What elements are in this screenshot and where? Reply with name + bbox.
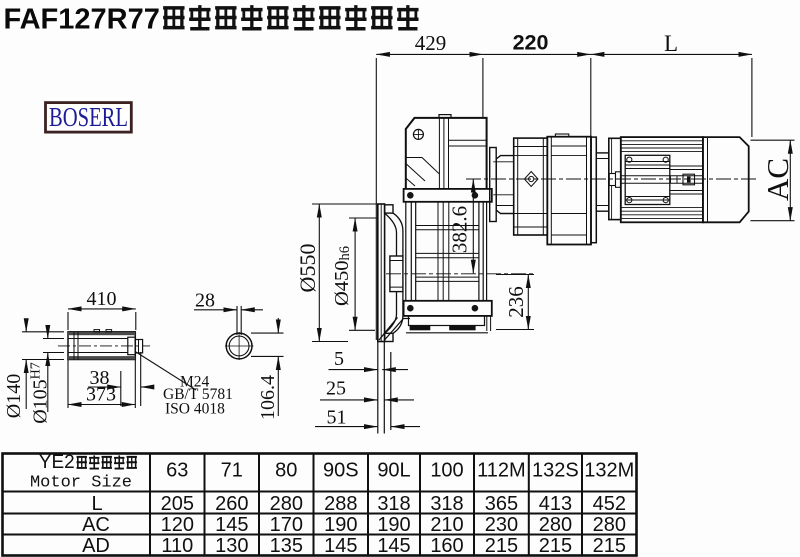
svg-text:318: 318 bbox=[377, 493, 410, 515]
svg-text:145: 145 bbox=[215, 514, 248, 536]
svg-text:L: L bbox=[664, 31, 678, 56]
svg-text:170: 170 bbox=[270, 514, 303, 536]
svg-text:63: 63 bbox=[166, 460, 188, 482]
svg-text:160: 160 bbox=[430, 535, 463, 557]
svg-text:205: 205 bbox=[161, 493, 194, 515]
svg-text:215: 215 bbox=[539, 535, 572, 557]
svg-text:452: 452 bbox=[593, 493, 626, 515]
svg-text:28: 28 bbox=[195, 290, 215, 312]
svg-text:Ø450h6: Ø450h6 bbox=[331, 246, 353, 306]
svg-text:90S: 90S bbox=[323, 460, 359, 482]
svg-text:190: 190 bbox=[377, 514, 410, 536]
svg-text:220: 220 bbox=[513, 31, 549, 55]
svg-text:L: L bbox=[91, 493, 102, 515]
svg-text:AC: AC bbox=[760, 158, 795, 201]
svg-text:51: 51 bbox=[327, 407, 347, 429]
svg-text:Motor Size: Motor Size bbox=[30, 474, 132, 493]
svg-text:429: 429 bbox=[415, 31, 447, 55]
svg-text:5: 5 bbox=[334, 348, 344, 370]
svg-text:AC: AC bbox=[82, 514, 110, 536]
svg-text:280: 280 bbox=[593, 514, 626, 536]
svg-text:ISO 4018: ISO 4018 bbox=[165, 401, 225, 418]
svg-text:106.4: 106.4 bbox=[257, 375, 279, 420]
svg-text:382.6: 382.6 bbox=[448, 206, 472, 253]
svg-text:AD: AD bbox=[82, 535, 110, 557]
svg-text:71: 71 bbox=[221, 460, 243, 482]
svg-text:120: 120 bbox=[161, 514, 194, 536]
svg-text:215: 215 bbox=[485, 535, 518, 557]
svg-text:280: 280 bbox=[270, 493, 303, 515]
svg-text:215: 215 bbox=[593, 535, 626, 557]
svg-text:135: 135 bbox=[270, 535, 303, 557]
svg-text:25: 25 bbox=[326, 378, 346, 400]
svg-text:130: 130 bbox=[215, 535, 248, 557]
svg-text:236: 236 bbox=[504, 286, 528, 318]
svg-text:110: 110 bbox=[161, 535, 193, 557]
svg-text:145: 145 bbox=[324, 535, 357, 557]
svg-text:318: 318 bbox=[430, 493, 463, 515]
svg-text:210: 210 bbox=[430, 514, 463, 536]
svg-text:373: 373 bbox=[86, 384, 116, 406]
svg-text:112M: 112M bbox=[477, 460, 526, 482]
svg-text:260: 260 bbox=[215, 493, 248, 515]
svg-text:145: 145 bbox=[377, 535, 410, 557]
svg-text:YE2: YE2 bbox=[39, 452, 75, 473]
svg-text:230: 230 bbox=[485, 514, 518, 536]
svg-text:Ø140: Ø140 bbox=[3, 374, 25, 418]
svg-text:365: 365 bbox=[485, 493, 518, 515]
svg-text:FAF127R77: FAF127R77 bbox=[4, 3, 160, 35]
svg-text:280: 280 bbox=[539, 514, 572, 536]
svg-text:413: 413 bbox=[539, 493, 572, 515]
svg-text:90L: 90L bbox=[377, 460, 410, 482]
svg-text:132S: 132S bbox=[532, 460, 579, 482]
svg-text:Ø550: Ø550 bbox=[295, 244, 320, 293]
svg-text:190: 190 bbox=[324, 514, 357, 536]
svg-text:288: 288 bbox=[324, 493, 357, 515]
svg-text:100: 100 bbox=[430, 460, 463, 482]
svg-text:80: 80 bbox=[275, 460, 297, 482]
svg-text:132M: 132M bbox=[584, 460, 634, 482]
svg-text:410: 410 bbox=[87, 288, 117, 310]
svg-text:BOSERL: BOSERL bbox=[49, 102, 128, 132]
